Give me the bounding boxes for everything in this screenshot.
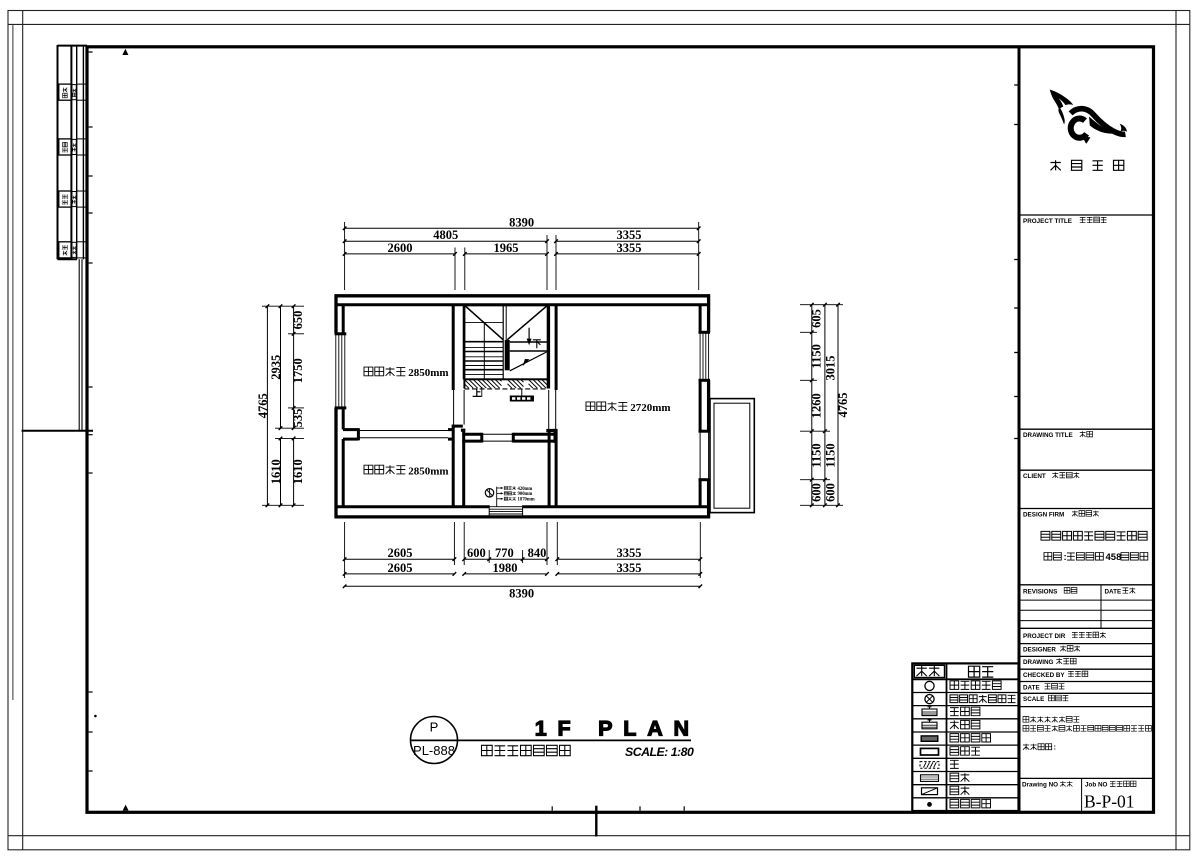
svg-text:4765: 4765 [256,393,270,418]
svg-text:1610: 1610 [291,459,305,484]
svg-text:3355: 3355 [617,241,642,255]
svg-text:CLIENT: CLIENT [1023,473,1046,480]
svg-text:2605: 2605 [388,561,413,575]
svg-text:P: P [430,720,439,735]
svg-text:DATE: DATE [1105,589,1122,596]
svg-text:650: 650 [291,311,305,330]
svg-text:1980: 1980 [493,561,518,575]
svg-text:2935: 2935 [269,355,283,380]
svg-text:DRAWING: DRAWING [1023,659,1054,666]
svg-text:REVISIONS: REVISIONS [1023,589,1057,596]
svg-text:1150: 1150 [824,443,838,467]
svg-text:770: 770 [495,546,514,560]
svg-text:600: 600 [810,483,824,502]
svg-text:605: 605 [810,309,824,328]
svg-text:420mm: 420mm [518,487,533,492]
svg-text:1260: 1260 [810,393,824,418]
svg-text:Job NO: Job NO [1085,782,1107,789]
svg-text:8390: 8390 [509,586,534,600]
svg-text:DATE: DATE [1023,684,1040,691]
svg-text:PROJECT DIR: PROJECT DIR [1023,633,1066,640]
svg-text:1150: 1150 [810,344,824,368]
svg-text:SCALE: SCALE [1023,696,1044,703]
svg-text:1870mm: 1870mm [518,498,535,503]
svg-text:PROJECT TITLE: PROJECT TITLE [1023,218,1072,225]
svg-text:1610: 1610 [269,459,283,484]
svg-text:DRAWING TITLE: DRAWING TITLE [1023,432,1073,439]
svg-text:600: 600 [824,483,838,502]
svg-text:3355: 3355 [617,546,642,560]
svg-text:3355: 3355 [617,561,642,575]
svg-text:DESIGN FIRM: DESIGN FIRM [1023,512,1064,519]
svg-text:535: 535 [291,409,305,428]
svg-text:1750: 1750 [291,358,305,383]
svg-text:8390: 8390 [509,215,534,229]
svg-text:2720mm: 2720mm [630,402,670,414]
svg-text:1965: 1965 [494,241,519,255]
svg-text:600: 600 [467,546,486,560]
svg-text::: : [1054,743,1057,752]
svg-text:4765: 4765 [836,393,850,418]
svg-text:3015: 3015 [824,356,838,381]
svg-text:2605: 2605 [388,546,413,560]
svg-text:2600: 2600 [388,241,413,255]
svg-text:900mm: 900mm [518,492,533,497]
svg-text:B-P-01: B-P-01 [1084,792,1135,812]
svg-text:DESIGNER: DESIGNER [1023,647,1056,654]
svg-text:4805: 4805 [433,228,458,242]
svg-text:PL-888: PL-888 [413,743,455,758]
svg-text:840: 840 [528,546,547,560]
svg-text::: : [1064,552,1067,563]
svg-text:1F PLAN: 1F PLAN [535,717,700,741]
svg-text:Drawing NO: Drawing NO [1022,782,1058,789]
svg-text:1150: 1150 [810,443,824,467]
svg-text:458: 458 [1106,552,1122,563]
svg-text:2850mm: 2850mm [408,367,448,379]
svg-text:CHECKED BY: CHECKED BY [1023,672,1065,679]
svg-text:2850mm: 2850mm [408,465,448,477]
svg-text:SCALE: 1:80: SCALE: 1:80 [625,745,694,759]
